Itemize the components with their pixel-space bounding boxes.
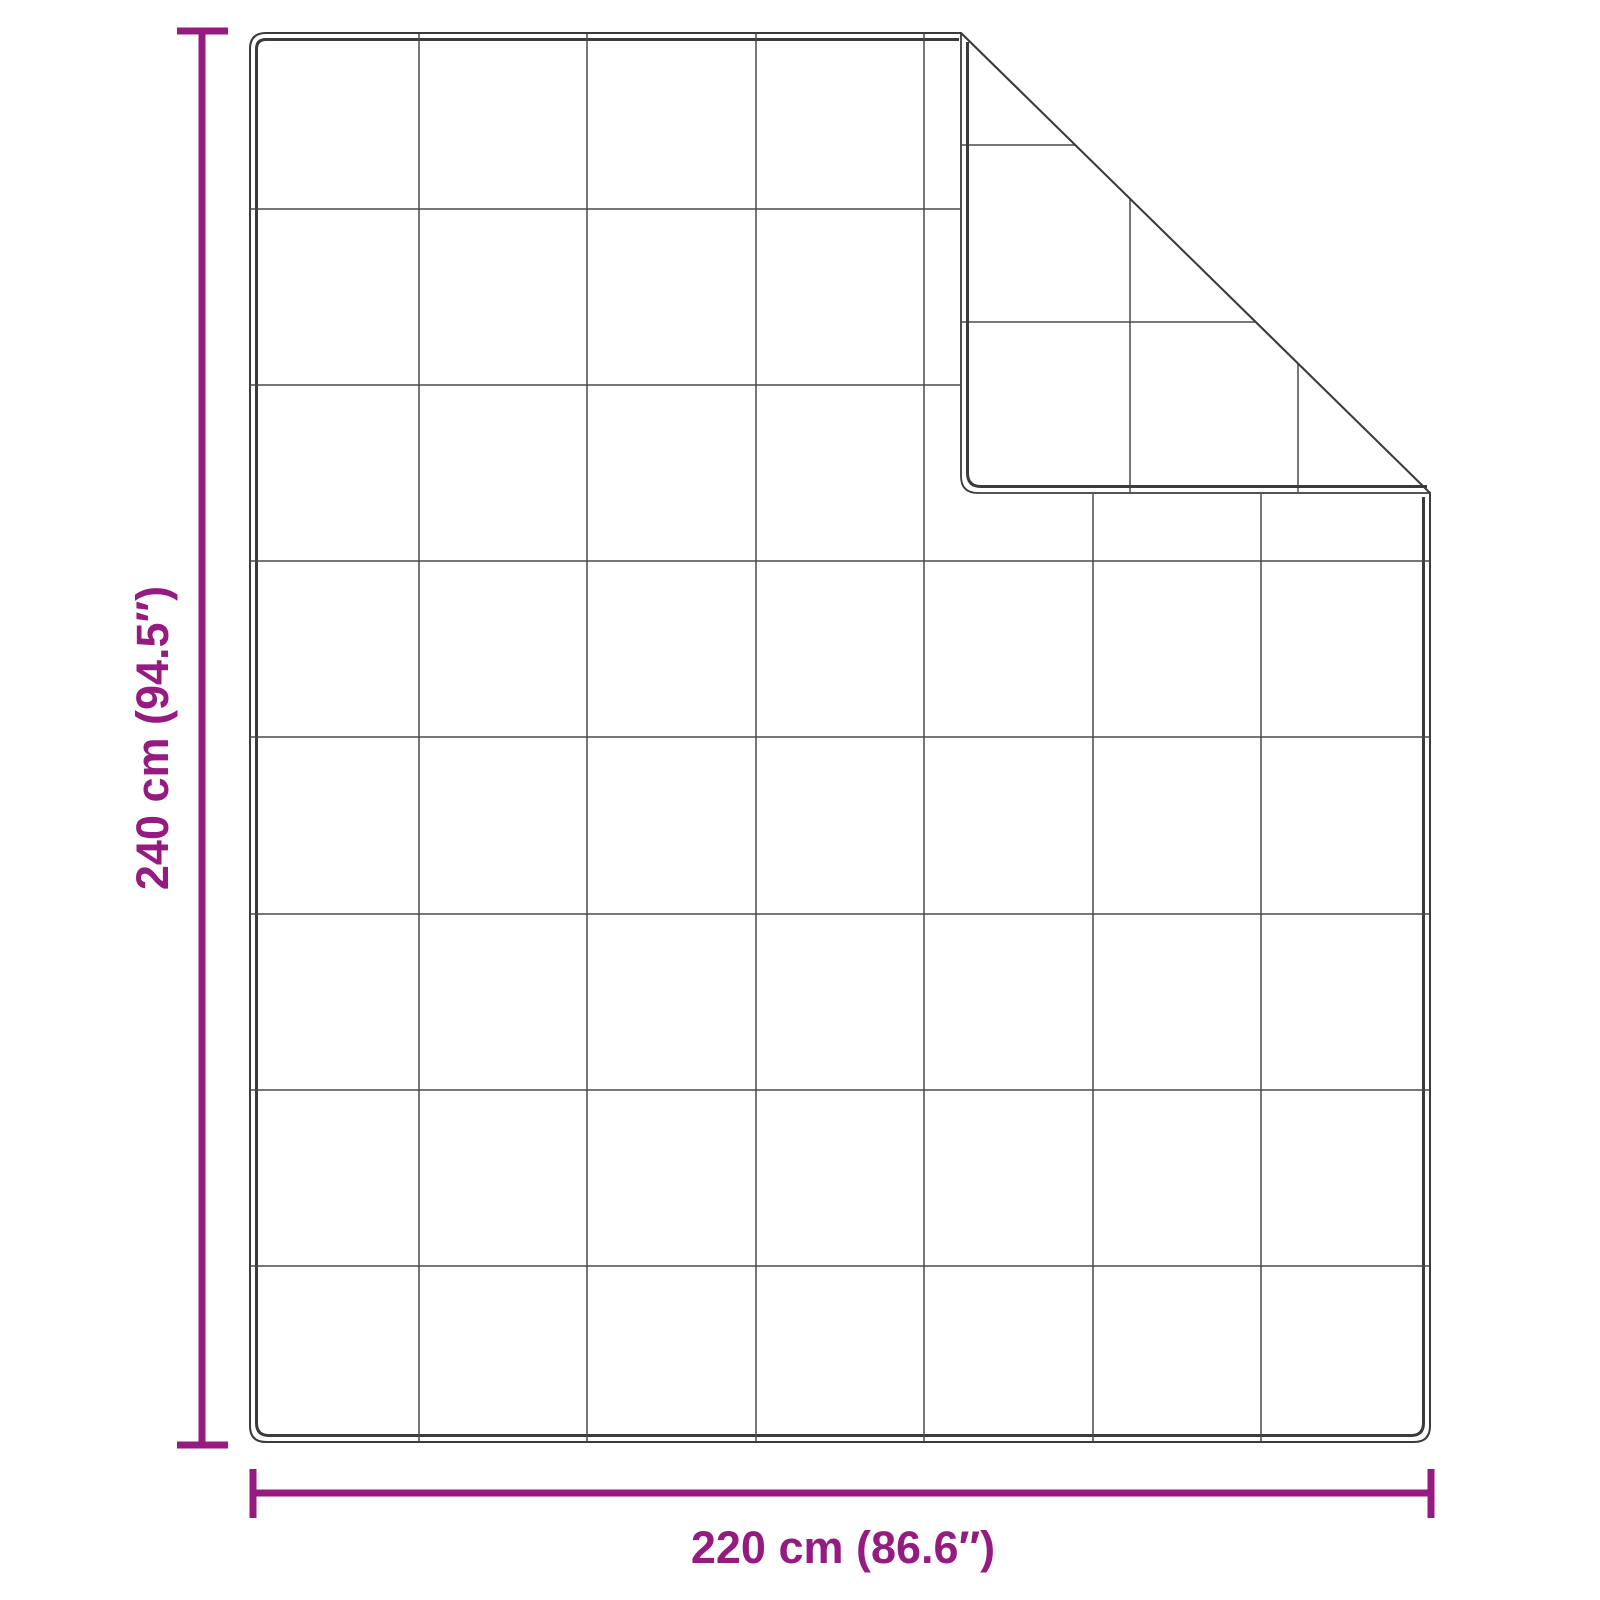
- folded-corner: [961, 33, 1430, 493]
- width-dimension-label: 220 cm (86.6″): [691, 1522, 995, 1573]
- blanket: [250, 33, 1430, 1442]
- height-dimension-label: 240 cm (94.5″): [127, 586, 178, 890]
- width-dimension: [253, 1469, 1431, 1518]
- height-dimension: [177, 31, 228, 1445]
- blanket-dimension-drawing: 240 cm (94.5″) 220 cm (86.6″): [0, 0, 1600, 1600]
- dimension-diagram: 240 cm (94.5″) 220 cm (86.6″): [0, 0, 1600, 1600]
